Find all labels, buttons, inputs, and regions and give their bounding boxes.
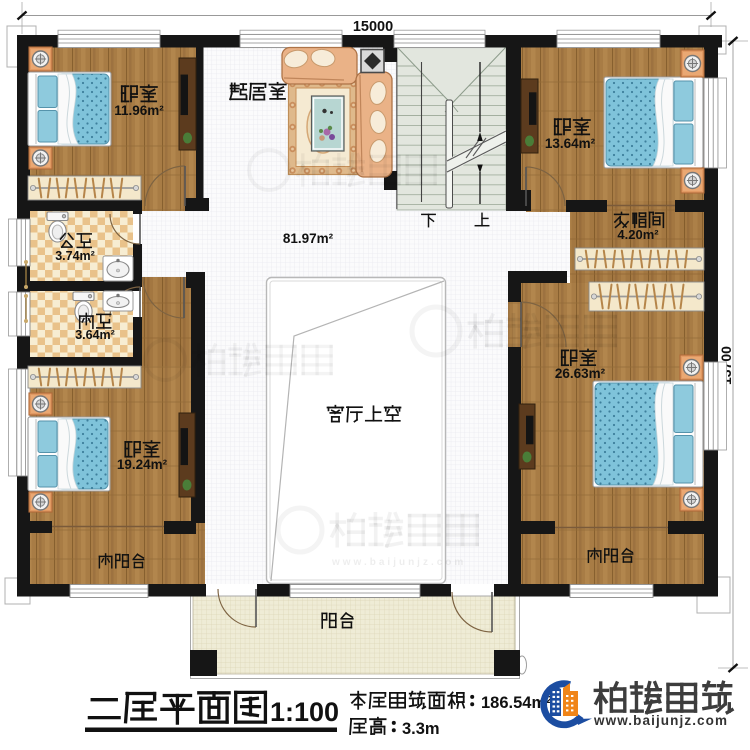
svg-text:1:100: 1:100 [270,697,339,727]
svg-text:26.63m²: 26.63m² [555,366,606,381]
svg-text:81.97m²: 81.97m² [283,231,334,246]
svg-text:3.64m²: 3.64m² [75,328,115,342]
svg-text:4.20m²: 4.20m² [617,227,659,242]
svg-text:3.3m: 3.3m [402,720,440,738]
svg-text:3.74m²: 3.74m² [55,249,95,263]
svg-text:11.96m²: 11.96m² [114,103,164,118]
svg-text:15000: 15000 [353,19,393,35]
svg-text:www.baijunjz.com: www.baijunjz.com [331,557,466,568]
svg-text:www.baijunjz.com: www.baijunjz.com [593,713,728,728]
svg-text:19.24m²: 19.24m² [117,457,168,472]
svg-text:13.64m²: 13.64m² [545,136,596,151]
